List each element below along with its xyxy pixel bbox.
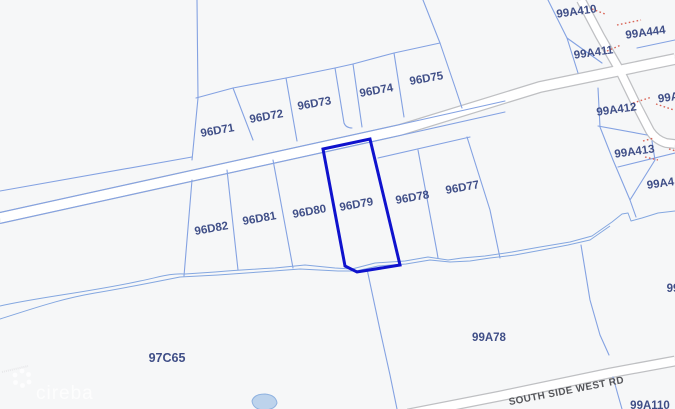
parcel-label-96d78: 96D78: [395, 189, 431, 207]
parcel-label-99a110: 99A110: [630, 400, 670, 409]
parcel-label-96d72: 96D72: [249, 108, 284, 126]
map-viewport[interactable]: 96D7196D7296D7396D7496D7596D8296D8196D80…: [0, 0, 675, 409]
parcel-label-99: 99: [667, 283, 675, 295]
road-edge-line: [0, 112, 505, 224]
parcel-label-99a4: 99A4: [646, 176, 675, 192]
parcel-label-96d71: 96D71: [200, 122, 236, 140]
parcel-label-99a: 99A: [657, 91, 675, 106]
cireba-watermark: cireba: [2, 366, 94, 404]
parcel-label-96d79: 96D79: [339, 196, 374, 214]
watermark-text: cireba: [36, 383, 94, 404]
parcel-label-96d80: 96D80: [292, 203, 327, 221]
parcel-labels-layer: 96D7196D7296D7396D7496D7596D8296D8196D80…: [149, 3, 675, 409]
parcel-label-97c65: 97C65: [149, 351, 186, 365]
pond: [252, 394, 277, 409]
parcel-label-96d73: 96D73: [297, 95, 332, 113]
parcel-label-96d74: 96D74: [359, 82, 395, 100]
flower-icon: [13, 369, 32, 388]
parcel-label-96d81: 96D81: [242, 210, 278, 228]
parcel-label-96d77: 96D77: [445, 179, 480, 197]
parcel-label-96d82: 96D82: [194, 220, 229, 238]
parcel-label-99a412: 99A412: [596, 101, 638, 118]
parcel-label-96d75: 96D75: [409, 70, 445, 88]
parcel-label-99a444: 99A444: [625, 24, 667, 42]
parcel-map-svg[interactable]: 96D7196D7296D7396D7496D7596D8296D8196D80…: [0, 0, 675, 409]
parcel-label-99a78: 99A78: [472, 332, 506, 344]
